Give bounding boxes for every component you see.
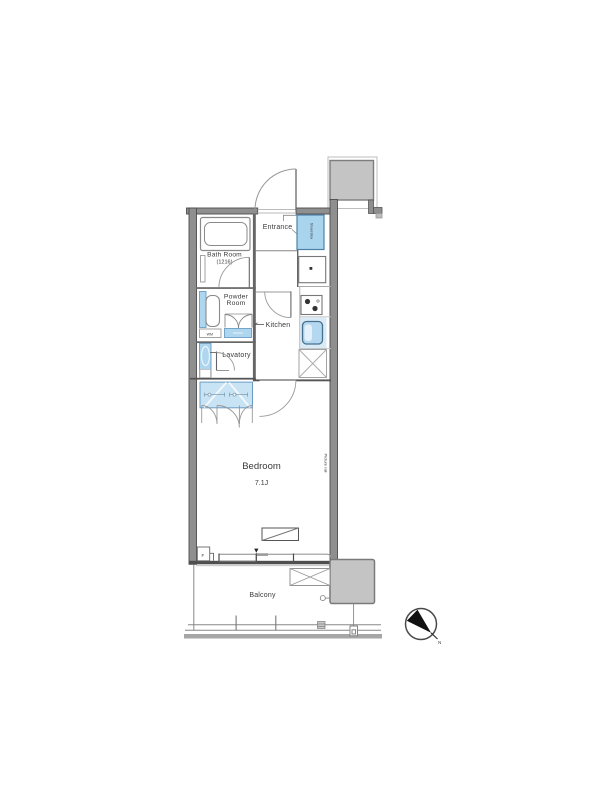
svg-text:Shoes Box: Shoes Box [310, 223, 314, 240]
svg-text:Bedroom: Bedroom [242, 461, 281, 472]
svg-text:Room: Room [227, 300, 246, 307]
svg-text:N: N [438, 640, 441, 645]
svg-text:F: F [201, 553, 204, 558]
svg-text:Kitchen: Kitchen [266, 322, 291, 329]
svg-text:Entrance: Entrance [263, 224, 293, 231]
svg-text:Bath Room: Bath Room [207, 252, 242, 259]
svg-text:Picture rail: Picture rail [324, 454, 329, 473]
svg-text:Balcony: Balcony [249, 592, 276, 599]
svg-text:WM: WM [207, 333, 213, 337]
svg-text:7.1J: 7.1J [255, 480, 268, 487]
